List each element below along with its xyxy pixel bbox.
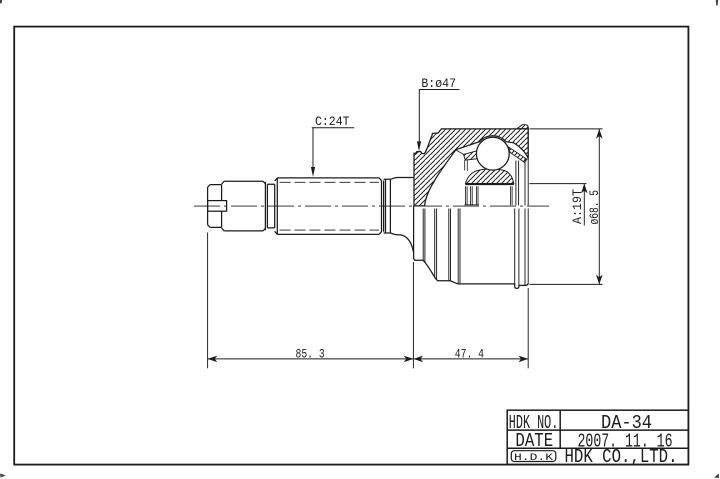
svg-text:85. 3: 85. 3 <box>296 346 325 361</box>
svg-text:DATE: DATE <box>515 430 553 452</box>
svg-text:B:ø47: B:ø47 <box>421 76 456 91</box>
svg-text:H.D.K: H.D.K <box>514 452 554 464</box>
svg-text:HDK CO.,LTD.: HDK CO.,LTD. <box>565 446 678 468</box>
svg-text:ø68. 5: ø68. 5 <box>587 190 602 225</box>
svg-text:A:19T: A:19T <box>570 189 585 224</box>
svg-text:C:24T: C:24T <box>315 114 350 129</box>
svg-text:47. 4: 47. 4 <box>455 346 484 361</box>
